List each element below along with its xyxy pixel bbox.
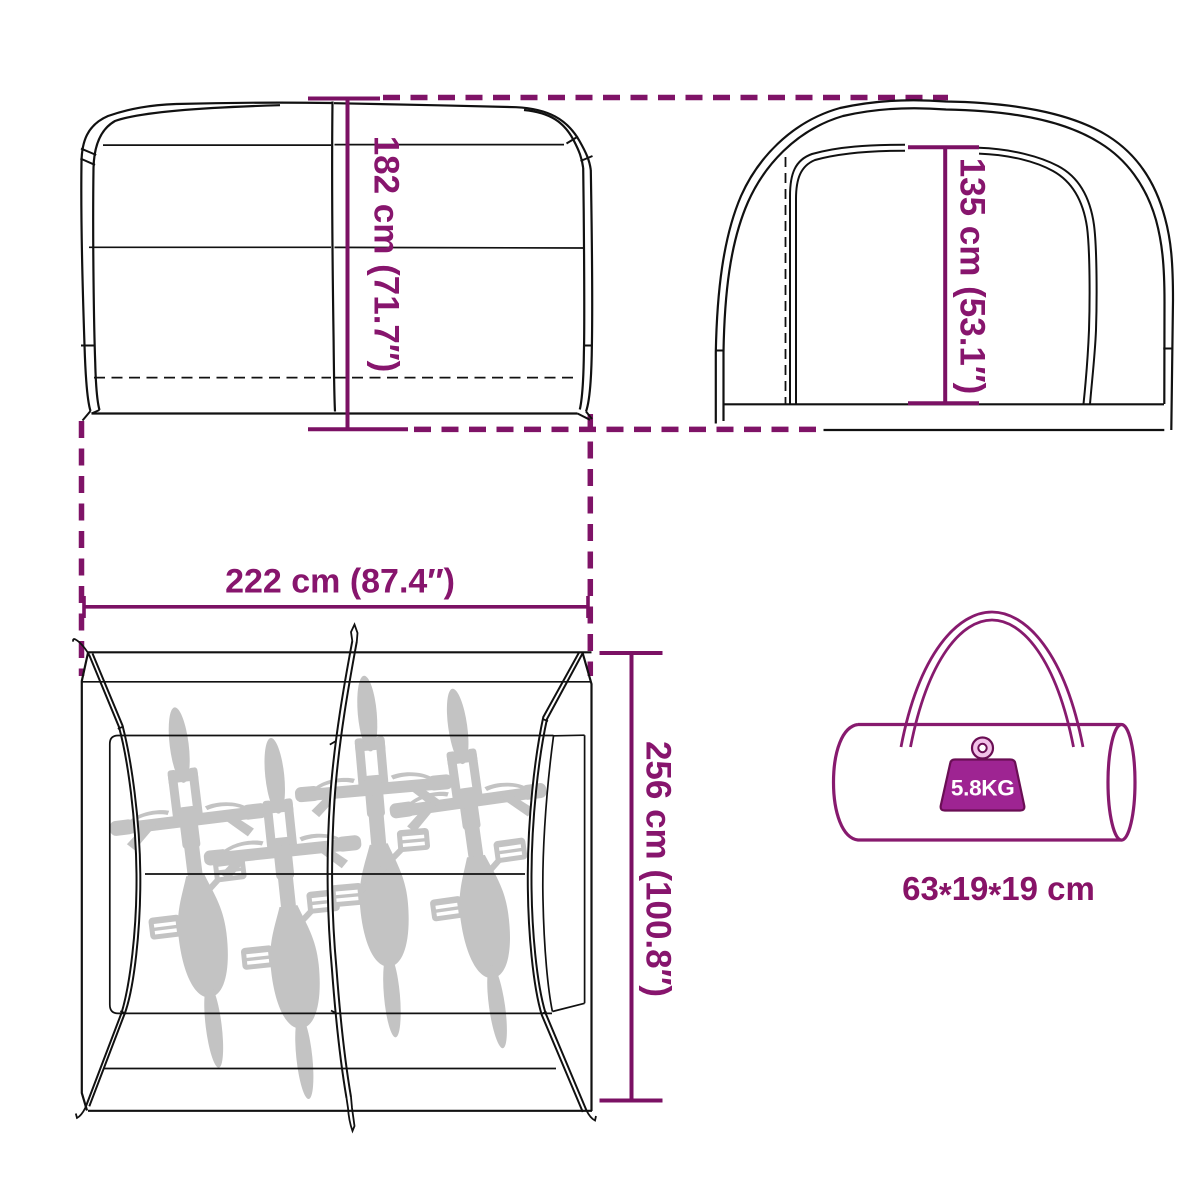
svg-text:256 cm (100.8″): 256 cm (100.8″) bbox=[639, 741, 678, 997]
svg-text:135 cm (53.1″): 135 cm (53.1″) bbox=[953, 158, 992, 395]
svg-text:5.8KG: 5.8KG bbox=[951, 776, 1015, 801]
svg-text:63*19*19 cm: 63*19*19 cm bbox=[902, 870, 1095, 913]
svg-text:182 cm (71.7″): 182 cm (71.7″) bbox=[367, 136, 406, 373]
svg-text:222 cm (87.4″): 222 cm (87.4″) bbox=[225, 563, 455, 601]
